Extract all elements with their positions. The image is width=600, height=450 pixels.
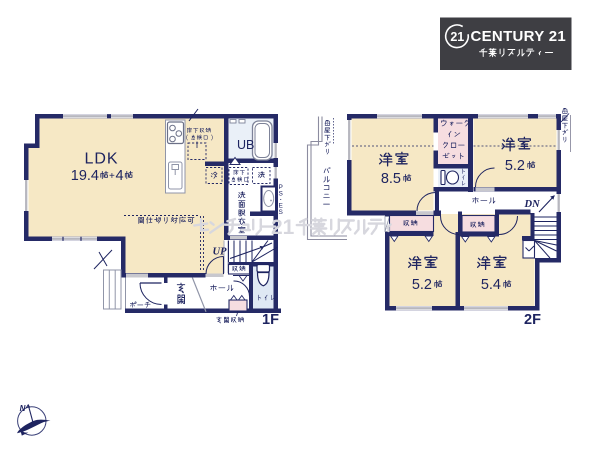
svg-text:UP: UP (213, 247, 228, 258)
svg-text:5.2: 5.2 (505, 158, 525, 174)
svg-text:8.5: 8.5 (381, 171, 401, 187)
svg-text:5.2: 5.2 (412, 277, 432, 293)
svg-text:S: S (279, 191, 284, 198)
svg-text:21: 21 (450, 30, 464, 44)
svg-text:5.4: 5.4 (481, 277, 501, 293)
svg-text:4: 4 (116, 168, 124, 184)
svg-text:S: S (279, 209, 284, 216)
svg-text:CENTURY 21: CENTURY 21 (471, 28, 567, 45)
svg-text:19.4: 19.4 (71, 168, 99, 184)
svg-text:N: N (20, 404, 26, 413)
svg-text:21: 21 (271, 216, 295, 239)
svg-text:2F: 2F (524, 312, 541, 328)
svg-text:1F: 1F (262, 312, 279, 328)
svg-text:DN: DN (524, 199, 541, 210)
svg-text:+: + (109, 171, 115, 182)
svg-text:UB: UB (237, 138, 254, 152)
svg-text:LDK: LDK (84, 151, 118, 168)
